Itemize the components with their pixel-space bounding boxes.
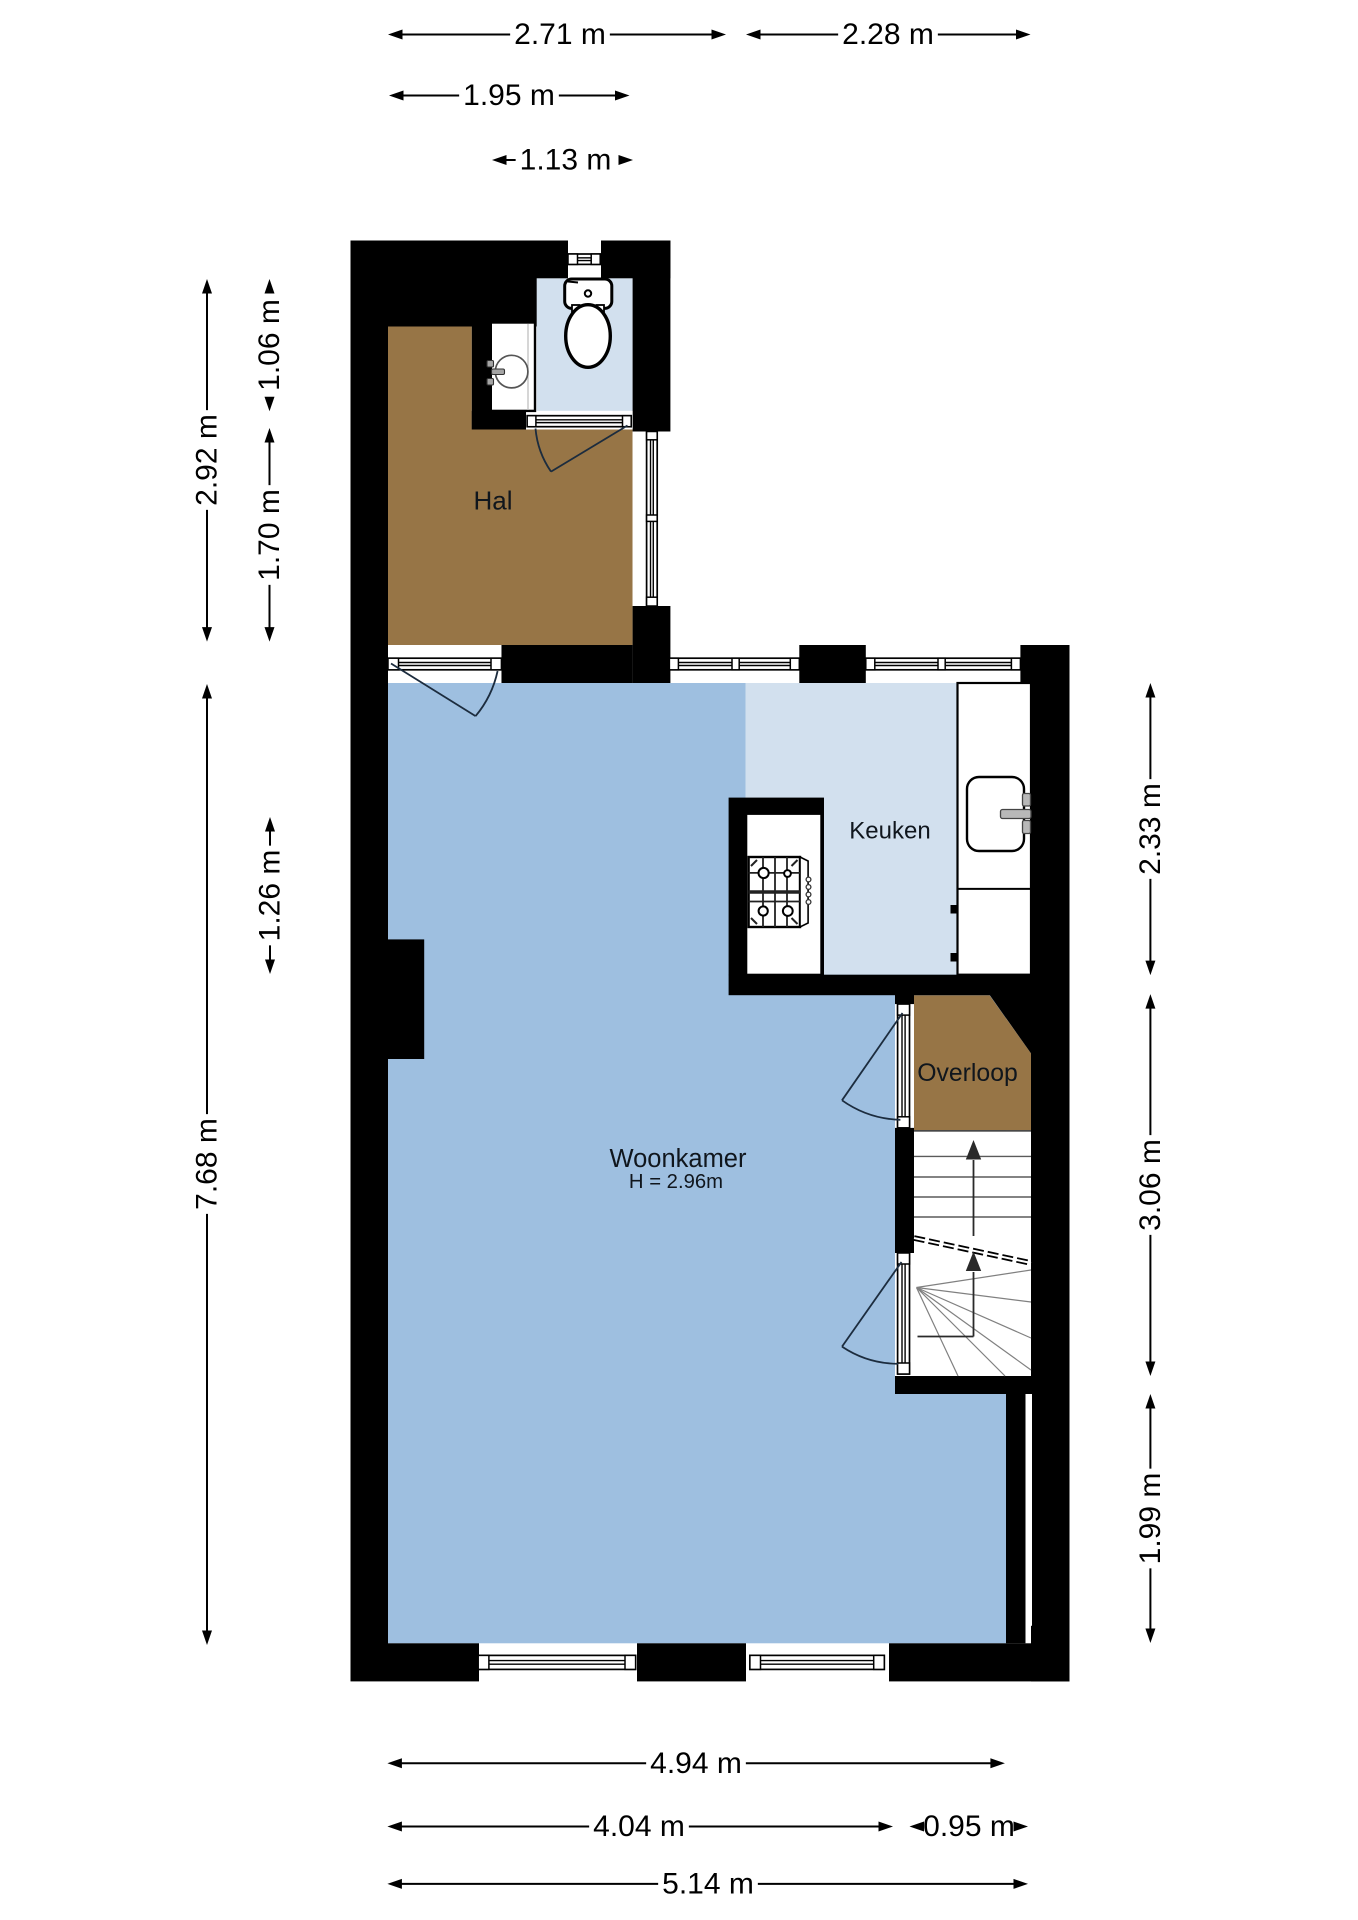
svg-text:Hal: Hal — [473, 486, 512, 516]
svg-text:0.95 m: 0.95 m — [923, 1810, 1015, 1843]
svg-text:Overloop: Overloop — [917, 1060, 1018, 1087]
svg-text:2.28 m: 2.28 m — [842, 18, 934, 51]
svg-text:7.68 m: 7.68 m — [191, 1118, 224, 1210]
svg-text:1.26 m: 1.26 m — [254, 850, 287, 942]
svg-text:2.92 m: 2.92 m — [191, 414, 224, 506]
svg-text:2.33 m: 2.33 m — [1134, 783, 1167, 875]
svg-text:1.06 m: 1.06 m — [253, 299, 286, 391]
svg-text:1.70 m: 1.70 m — [253, 489, 286, 581]
svg-text:Keuken: Keuken — [849, 817, 930, 844]
svg-text:4.94 m: 4.94 m — [650, 1747, 742, 1780]
svg-text:2.71 m: 2.71 m — [514, 18, 606, 51]
svg-text:4.04 m: 4.04 m — [593, 1810, 685, 1843]
svg-text:3.06 m: 3.06 m — [1134, 1139, 1167, 1231]
svg-text:Woonkamer: Woonkamer — [609, 1145, 747, 1173]
svg-text:H = 2.96m: H = 2.96m — [629, 1171, 723, 1193]
svg-text:1.13 m: 1.13 m — [520, 144, 612, 177]
svg-text:1.99 m: 1.99 m — [1134, 1473, 1167, 1565]
svg-text:5.14 m: 5.14 m — [662, 1868, 754, 1901]
svg-text:1.95 m: 1.95 m — [463, 79, 555, 112]
